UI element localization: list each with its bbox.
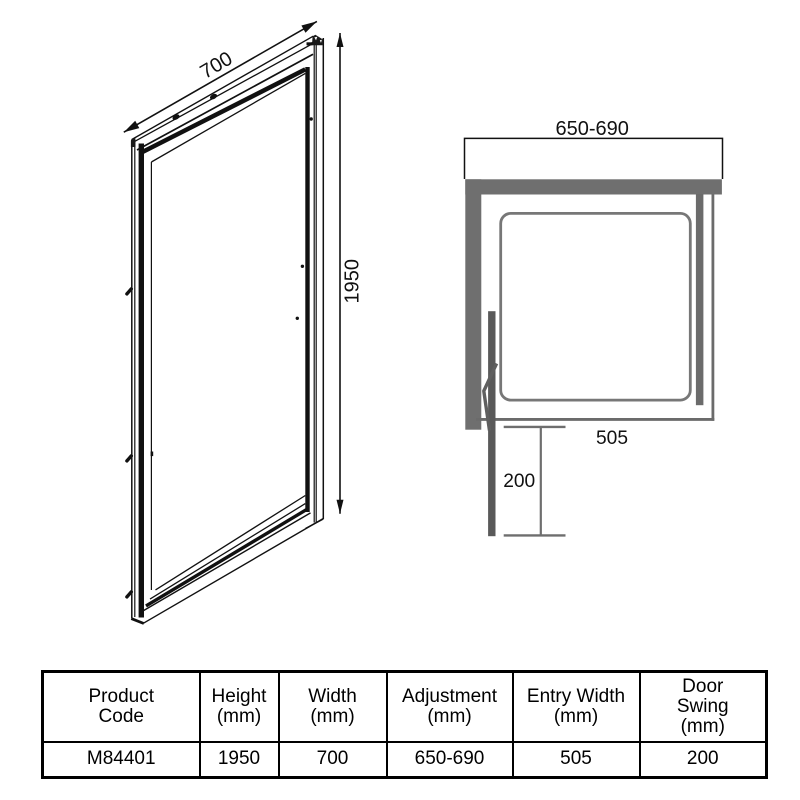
svg-text:505: 505	[596, 428, 628, 449]
svg-text:700: 700	[197, 48, 237, 84]
svg-text:650-690: 650-690	[555, 118, 628, 140]
svg-text:200: 200	[503, 471, 535, 492]
svg-text:1950: 1950	[341, 259, 363, 304]
